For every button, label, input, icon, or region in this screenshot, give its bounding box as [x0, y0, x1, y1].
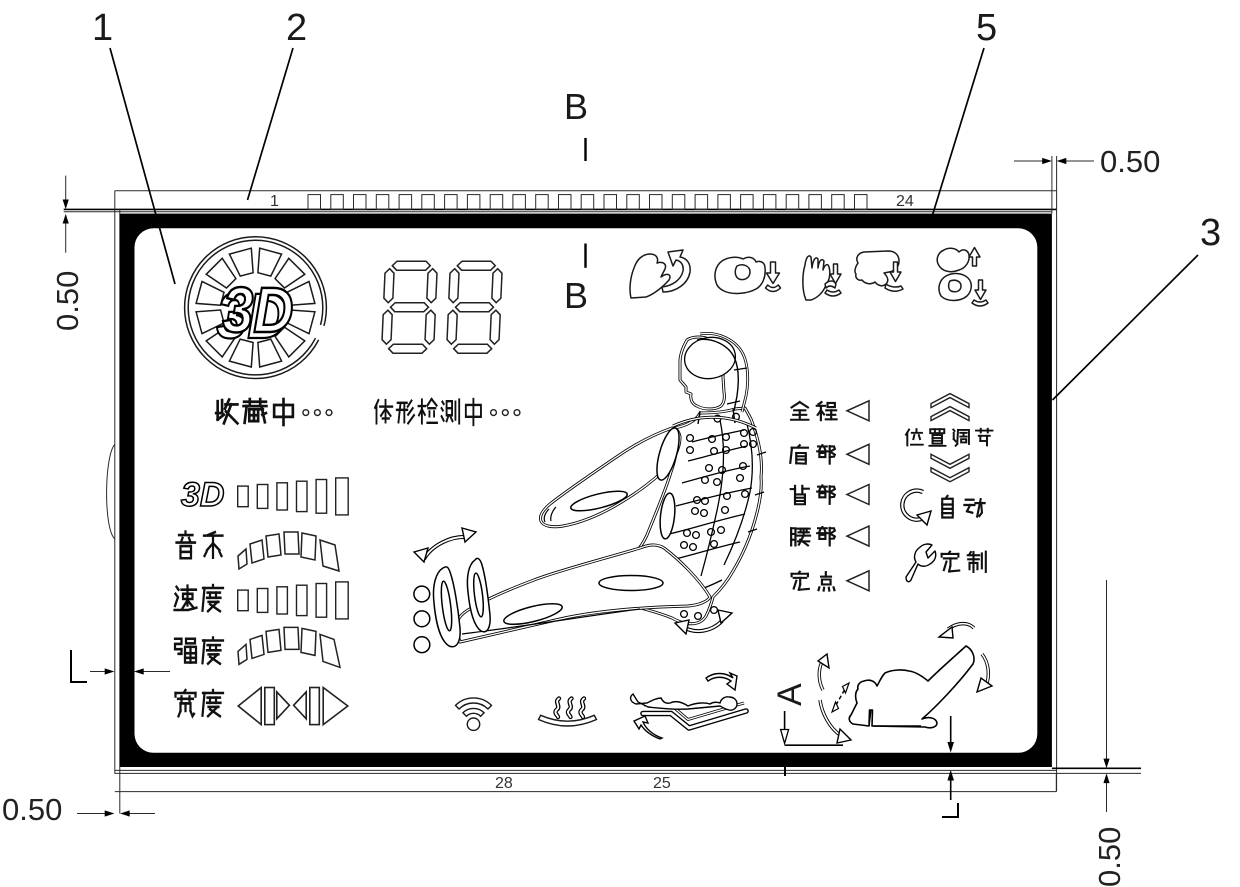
svg-text:3D: 3D — [181, 476, 224, 514]
svg-text:25: 25 — [653, 775, 671, 792]
svg-text:0.50: 0.50 — [2, 792, 62, 827]
svg-text:24: 24 — [896, 193, 914, 210]
svg-text:B: B — [564, 86, 588, 127]
svg-text:28: 28 — [495, 775, 513, 792]
svg-text:1: 1 — [270, 193, 279, 210]
svg-text:B: B — [564, 275, 588, 316]
svg-text:A: A — [771, 683, 809, 706]
svg-text:0.50: 0.50 — [50, 271, 85, 331]
svg-text:5: 5 — [976, 7, 997, 49]
svg-text:1: 1 — [92, 7, 113, 49]
svg-text:0.50: 0.50 — [1100, 144, 1160, 179]
svg-text:0.50: 0.50 — [1092, 827, 1127, 887]
svg-text:3D: 3D — [223, 274, 294, 346]
svg-text:2: 2 — [286, 7, 307, 49]
svg-text:3: 3 — [1200, 212, 1221, 254]
